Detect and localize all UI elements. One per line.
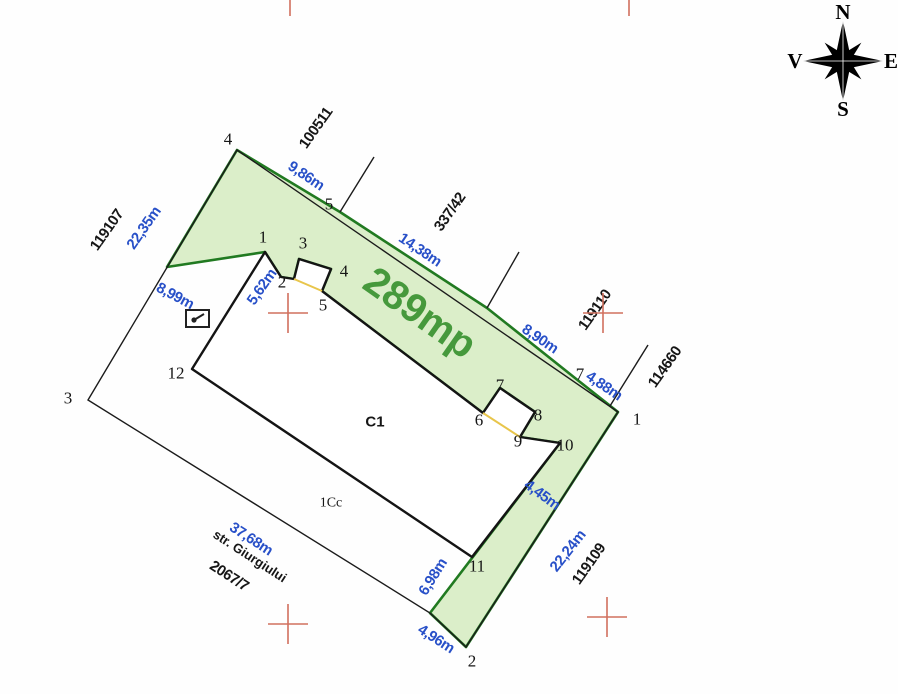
compass-east-label: E <box>884 49 898 73</box>
yard-label: 1Cc <box>320 496 343 511</box>
point-label-7-outer: 7 <box>576 365 585 384</box>
building-point-2: 2 <box>278 273 287 292</box>
building-point-8: 8 <box>534 406 543 425</box>
compass-rose: N E S V <box>787 0 898 121</box>
dimension-label-west-lower: 8,99m <box>153 279 196 313</box>
building-label: C1 <box>365 414 384 431</box>
compass-west-label: V <box>787 49 802 73</box>
point-label-11: 11 <box>469 557 485 576</box>
building-point-4: 4 <box>340 262 349 281</box>
building-point-9: 9 <box>514 432 523 451</box>
point-label-12: 12 <box>168 364 185 383</box>
building-point-1: 1 <box>259 228 268 247</box>
building-point-10: 10 <box>557 436 574 455</box>
point-label-2: 2 <box>468 652 477 671</box>
neighbor-parcel-id-east-lower: 114660 <box>645 343 686 391</box>
point-label-3: 3 <box>64 389 73 408</box>
neighbor-parcel-id-east-upper: 119110 <box>575 286 615 333</box>
plan-canvas: 119107 100511 337/42 119110 114660 11910… <box>0 0 898 694</box>
dimension-label-west: 22,35m <box>123 203 164 252</box>
compass-south-label: S <box>837 97 849 121</box>
utility-symbol-icon <box>186 310 209 327</box>
building-point-3: 3 <box>299 234 308 253</box>
boundary-tick <box>340 157 374 212</box>
street-parcel-id: 2067/7 <box>206 557 251 595</box>
boundary-tick <box>487 252 519 308</box>
building-point-5: 5 <box>319 296 328 315</box>
neighbor-parcel-id-northeast: 337/42 <box>431 189 470 234</box>
point-label-1: 1 <box>633 410 642 429</box>
point-label-5: 5 <box>325 195 334 214</box>
point-label-4: 4 <box>224 130 233 149</box>
cadastral-plan: 119107 100511 337/42 119110 114660 11910… <box>0 0 898 694</box>
building-point-6: 6 <box>475 411 484 430</box>
compass-north-label: N <box>835 0 850 24</box>
neighbor-parcel-id-north: 100511 <box>296 104 337 152</box>
neighbor-parcel-id-west: 119107 <box>87 206 128 254</box>
building-point-7: 7 <box>496 376 505 395</box>
